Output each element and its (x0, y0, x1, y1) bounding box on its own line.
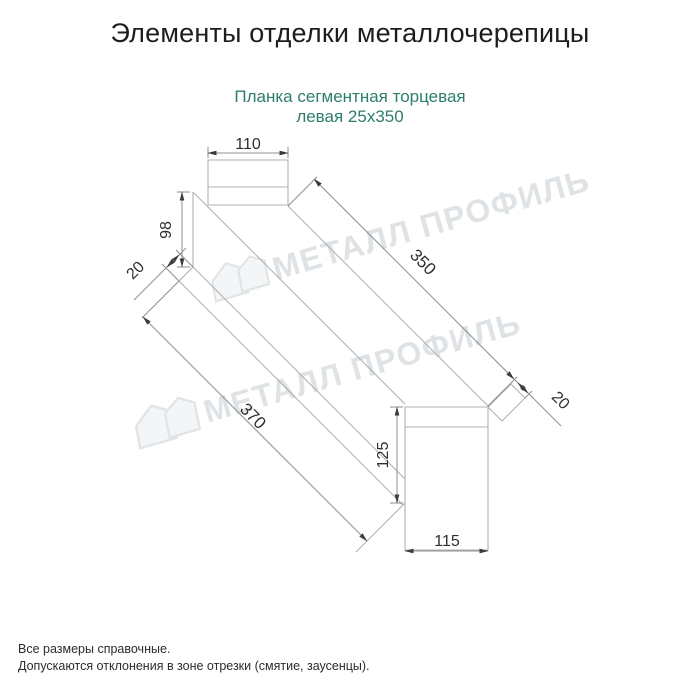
left-end-top-face (208, 160, 288, 205)
dimension-label-20-left: 20 (124, 258, 149, 283)
dimension-label-115: 115 (434, 533, 460, 550)
house-logo-icon (207, 253, 272, 302)
right-end-bottom-fold (356, 503, 405, 552)
dimension-left-face-height: 98 (158, 192, 190, 267)
dimension-label-125: 125 (375, 442, 392, 469)
watermark-a: МЕТАЛЛ ПРОФИЛЬ (207, 161, 594, 305)
house-logo-icon (130, 394, 203, 449)
dimension-label-20-right: 20 (548, 389, 573, 414)
dimension-left-flange: 20 (124, 248, 193, 300)
footer-note-2: Допускаются отклонения в зоне отрезки (с… (18, 658, 370, 675)
dimension-label-98: 98 (158, 221, 175, 239)
dimension-label-350: 350 (406, 245, 439, 278)
right-end-flange (488, 384, 525, 421)
dimension-right-flange: 20 (515, 380, 573, 426)
dimension-label-110: 110 (235, 136, 261, 153)
dimension-top-width: 110 (208, 136, 288, 158)
footer-note-1: Все размеры справочные. (18, 641, 370, 658)
right-end-face (405, 407, 488, 550)
page: Элементы отделки металлочерепицы Планка … (0, 0, 700, 700)
dimension-right-face-height: 125 (375, 407, 403, 503)
technical-drawing: МЕТАЛЛ ПРОФИЛЬ МЕТАЛЛ ПРОФИЛЬ (0, 0, 700, 700)
footer-notes: Все размеры справочные. Допускаются откл… (18, 641, 370, 675)
